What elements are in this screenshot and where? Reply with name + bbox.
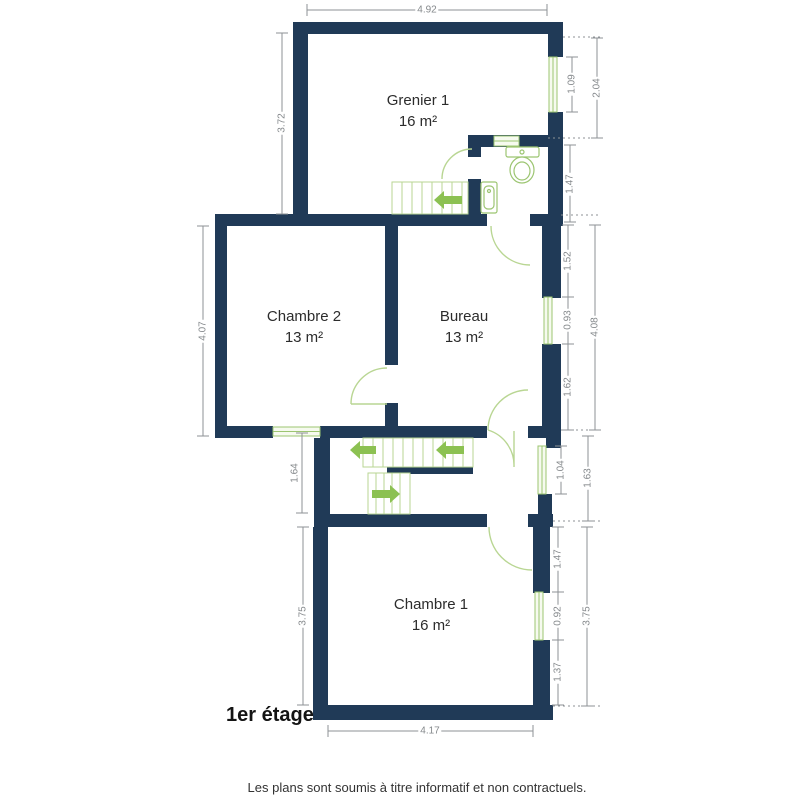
room-area: 13 m² [267,327,341,348]
dim-hall-total: 1.63 [583,466,594,489]
window-chambre2-bottom [273,427,320,436]
dim-chambre1-left: 3.75 [298,604,309,627]
window-wc-top [494,136,519,146]
wall-segment [215,214,227,438]
wall-segment [385,226,398,365]
wall-segment [542,344,561,430]
room-label-grenier-1: Grenier 1 16 m² [387,90,450,132]
dim-hall-window: 1.04 [556,458,567,481]
dim-top-width: 4.92 [415,5,438,16]
room-area: 16 m² [394,615,468,636]
window-bureau-right [544,297,552,344]
toilet-icon [506,147,539,183]
door-arc-bureau-top [491,226,530,265]
dim-bureau-total: 4.08 [590,315,601,338]
door-arc-wc [442,149,472,179]
dim-wc-right: 1.47 [565,172,576,195]
wall-segment [320,426,487,438]
window-grenier-right [549,57,557,112]
dim-bureau-window: 0.93 [563,308,574,331]
dim-chambre1-lower: 1.37 [553,660,564,683]
sink-icon [481,182,497,213]
door-arc-hall [488,430,514,467]
floor-title: 1er étage [226,704,314,727]
stairs-landing-upper [350,438,473,467]
room-label-bureau: Bureau 13 m² [440,306,488,348]
wall-segment [542,214,561,298]
room-area: 13 m² [440,327,488,348]
dim-chambre1-right-total: 3.75 [582,604,593,627]
door-arc-bureau-bottom [488,390,528,430]
dim-bureau-lower: 1.62 [563,375,574,398]
dim-chambre1-window: 0.92 [553,604,564,627]
wall-segment [533,527,550,593]
dim-chambre2-left: 4.07 [198,319,209,342]
wall-segment [528,514,553,527]
room-label-chambre-2: Chambre 2 13 m² [267,306,341,348]
room-label-chambre-1: Chambre 1 16 m² [394,594,468,636]
dim-grenier-window: 1.09 [567,72,578,95]
dim-grenier-left: 3.72 [277,111,288,134]
wall-segment [314,514,487,527]
dim-bureau-upper: 1.52 [563,249,574,272]
wall-segment [538,494,552,514]
window-chambre1-right [535,592,543,640]
door-arc-chambre2 [351,368,387,404]
wall-segment [215,426,273,438]
wall-segment [313,527,328,705]
floor-plan-canvas: 4.92 3.72 4.07 1.64 3.75 1.09 2.04 1.47 … [0,0,800,800]
wall-segment [468,135,481,157]
stairs-grenier [392,182,468,214]
room-name: Bureau [440,306,488,327]
wall-segment [533,640,550,720]
disclaimer-text: Les plans sont soumis à titre informatif… [17,780,800,795]
wall-segment [548,22,563,57]
room-name: Grenier 1 [387,90,450,111]
wall-segment [314,438,330,514]
wall-segment [217,214,487,226]
dim-landing-left: 1.64 [290,461,301,484]
dim-chambre1-bottom: 4.17 [418,726,441,737]
room-area: 16 m² [387,111,450,132]
dim-chambre1-upper: 1.47 [553,547,564,570]
wall-segment [293,22,563,34]
stairs-landing-lower [368,473,410,514]
room-name: Chambre 2 [267,306,341,327]
wall-segment [313,705,553,720]
room-name: Chambre 1 [394,594,468,615]
dim-grenier-right-total: 2.04 [592,76,603,99]
wall-segment [293,22,308,226]
window-hall-right [538,446,546,494]
door-arc-chambre1 [489,527,532,570]
